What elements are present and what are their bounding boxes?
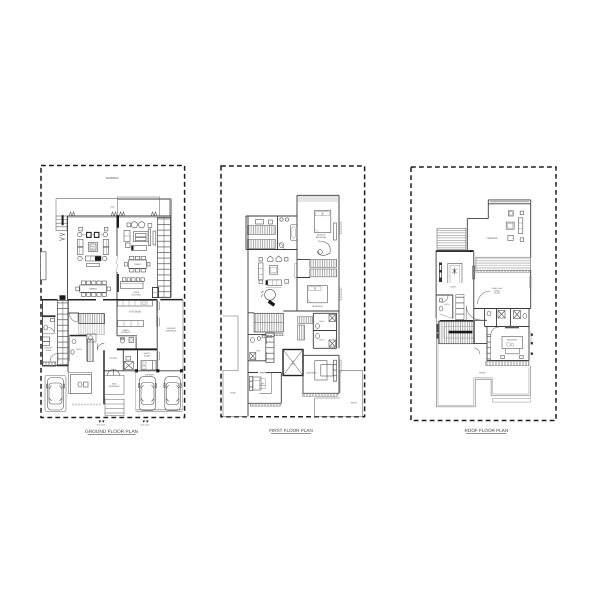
svg-text:SIDE GATE: SIDE GATE [97, 424, 107, 427]
svg-text:BEDROOM: BEDROOM [316, 236, 327, 239]
svg-text:KITCHEN: KITCHEN [132, 294, 141, 297]
svg-text:BATH: BATH [77, 348, 83, 351]
svg-text:ROOM: ROOM [260, 384, 266, 387]
svg-text:DINING: DINING [89, 288, 97, 291]
svg-text:KITCHEN: KITCHEN [129, 311, 141, 314]
svg-text:SUITE: SUITE [450, 286, 457, 289]
svg-text:BATH: BATH [320, 339, 326, 342]
svg-text:CARPORT: CARPORT [145, 373, 155, 376]
svg-text:ROOM: ROOM [494, 292, 500, 295]
svg-text:BBQ: BBQ [111, 206, 115, 209]
svg-text:BEDROOM: BEDROOM [312, 305, 323, 308]
svg-text:ROOF: ROOF [479, 371, 486, 374]
svg-text:ROOF: ROOF [351, 401, 358, 404]
svg-text:TABLE: TABLE [134, 263, 141, 266]
svg-text:ROOM: ROOM [144, 354, 151, 357]
svg-text:BATH: BATH [320, 320, 326, 323]
svg-text:BATH: BATH [445, 303, 450, 306]
svg-text:VOID: VOID [230, 392, 236, 395]
svg-text:ENTRANCE: ENTRANCE [165, 329, 177, 332]
svg-text:GARDEN: GARDEN [106, 176, 119, 180]
svg-text:BEDROOM: BEDROOM [307, 371, 317, 374]
svg-text:ROOF FLOOR PLAN: ROOF FLOOR PLAN [464, 428, 508, 433]
svg-text:MAIN GATE: MAIN GATE [140, 424, 150, 427]
svg-text:SET: SET [91, 247, 94, 250]
svg-text:ROOM: ROOM [46, 349, 52, 352]
svg-text:GROUND FLOOR PLAN: GROUND FLOOR PLAN [85, 429, 139, 435]
svg-text:STORAGE: STORAGE [121, 331, 131, 334]
svg-text:BEDROOM: BEDROOM [507, 339, 517, 342]
svg-text:FIRST FLOOR PLAN: FIRST FLOOR PLAN [269, 428, 313, 433]
svg-text:ENTRANCE: ENTRANCE [109, 385, 121, 388]
svg-text:FOYER: FOYER [109, 357, 117, 360]
svg-text:BTH: BTH [257, 350, 261, 353]
svg-text:TERRACE: TERRACE [486, 237, 498, 240]
